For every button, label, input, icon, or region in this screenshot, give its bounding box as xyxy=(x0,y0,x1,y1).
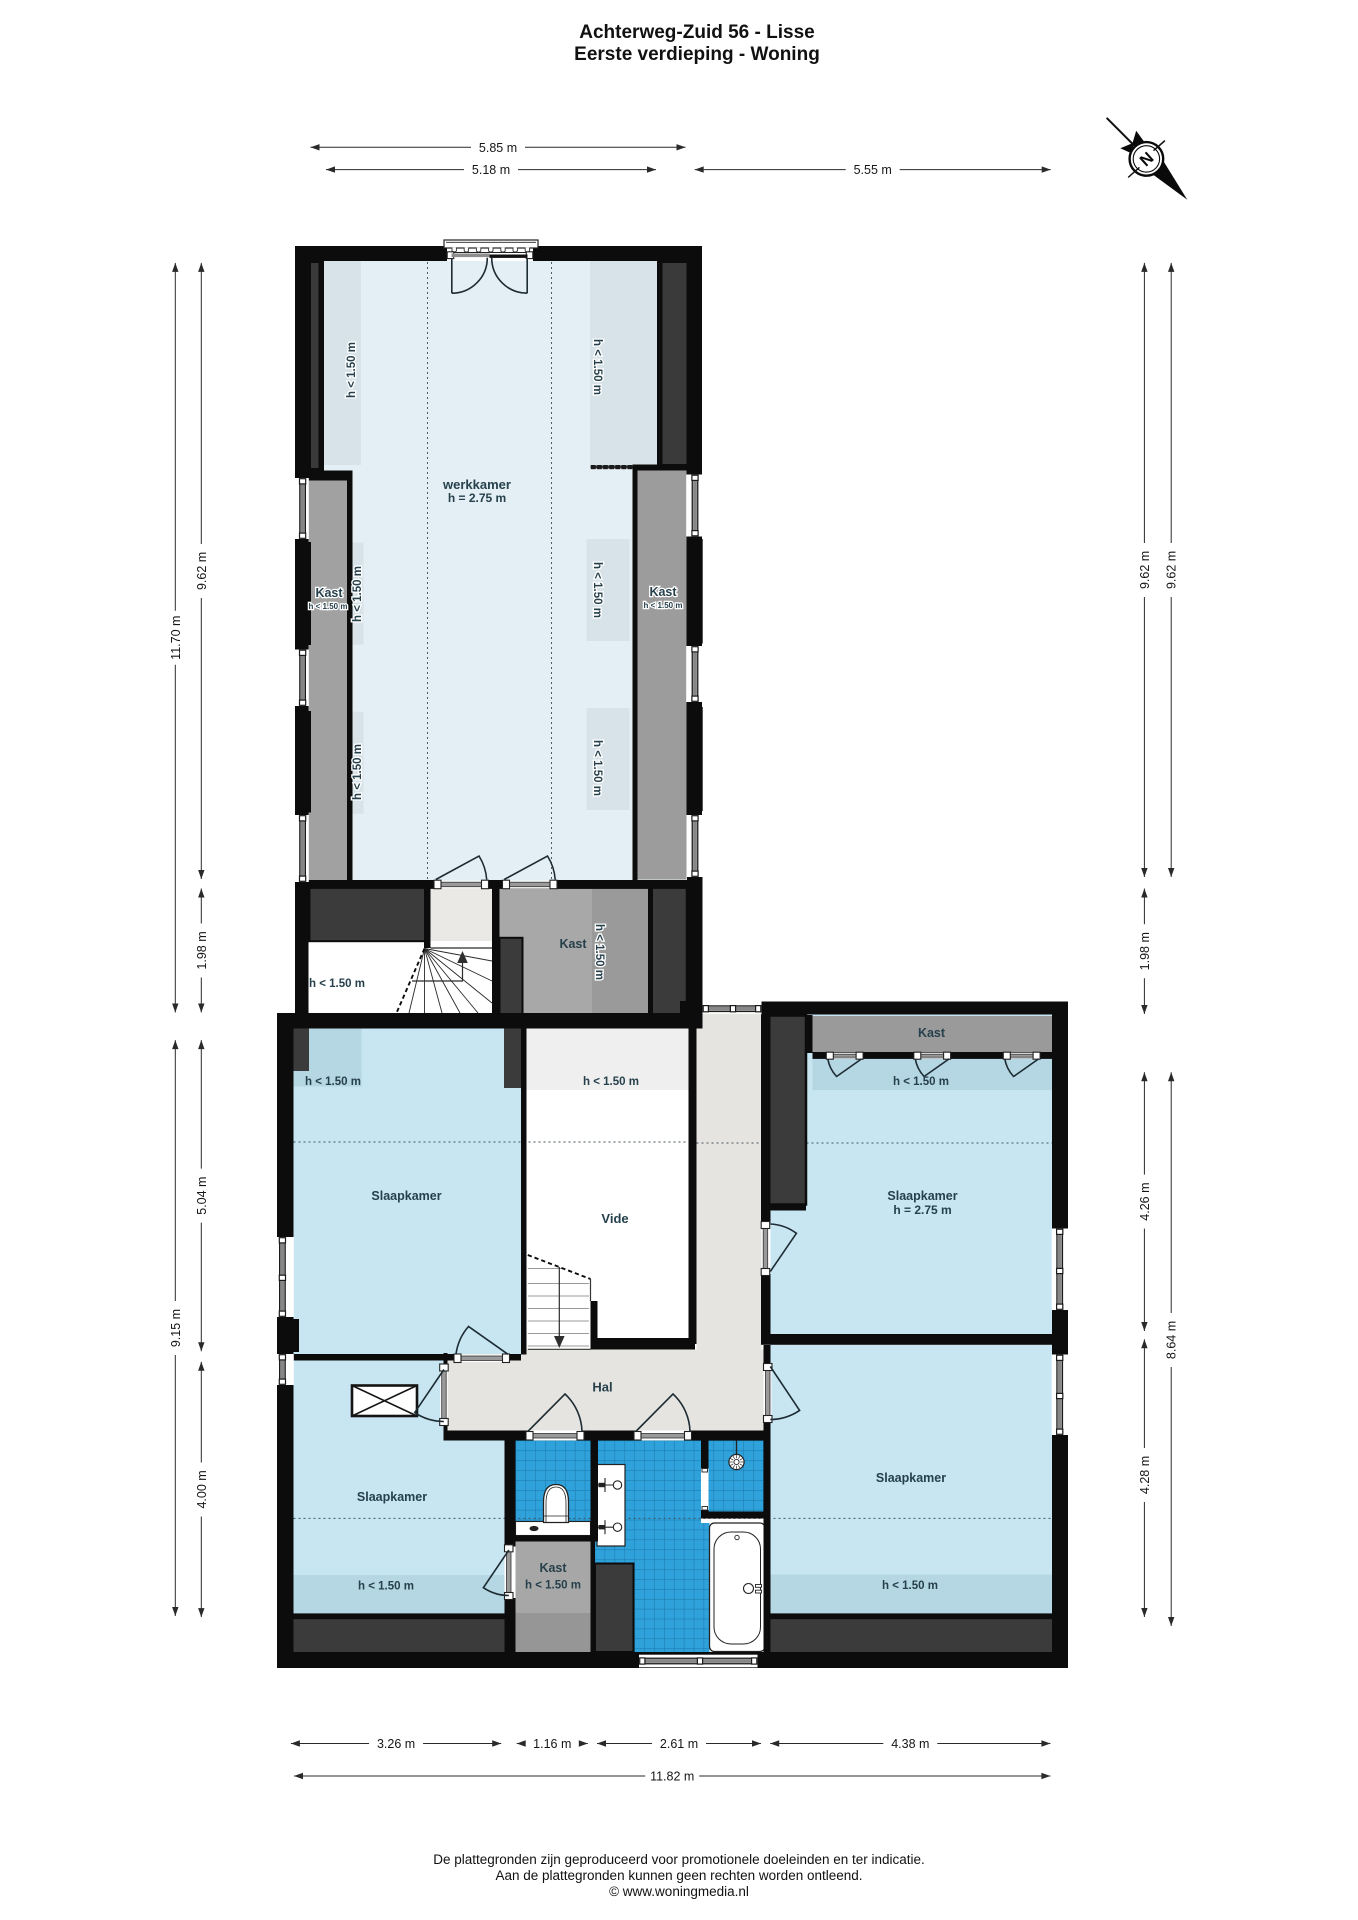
svg-text:9.62 m: 9.62 m xyxy=(1165,551,1179,589)
svg-text:1.16 m: 1.16 m xyxy=(533,1737,571,1751)
svg-text:Vide: Vide xyxy=(601,1211,628,1226)
svg-text:De plattegronden zijn geproduc: De plattegronden zijn geproduceerd voor … xyxy=(433,1852,925,1867)
svg-text:h < 1.50 m: h < 1.50 m xyxy=(346,342,358,398)
svg-text:5.04 m: 5.04 m xyxy=(195,1177,209,1215)
svg-text:9.15 m: 9.15 m xyxy=(169,1309,183,1347)
svg-text:Kast: Kast xyxy=(559,937,587,951)
svg-text:4.38 m: 4.38 m xyxy=(891,1737,929,1751)
svg-text:h < 1.50 m: h < 1.50 m xyxy=(882,1580,938,1592)
svg-text:5.18 m: 5.18 m xyxy=(472,163,510,177)
svg-text:Achterweg-Zuid 56 - Lisse: Achterweg-Zuid 56 - Lisse xyxy=(579,22,814,43)
svg-text:h < 1.50 m: h < 1.50 m xyxy=(644,601,683,610)
svg-text:Hal: Hal xyxy=(592,1380,612,1395)
svg-text:h = 2.75 m: h = 2.75 m xyxy=(448,491,506,505)
svg-text:h < 1.50 m: h < 1.50 m xyxy=(305,1076,361,1088)
svg-text:11.82 m: 11.82 m xyxy=(650,1770,694,1784)
svg-text:4.00 m: 4.00 m xyxy=(195,1470,209,1508)
svg-text:Slaapkamer: Slaapkamer xyxy=(357,1490,427,1504)
svg-text:h = 2.75 m: h = 2.75 m xyxy=(893,1203,951,1217)
svg-text:h < 1.50 m: h < 1.50 m xyxy=(593,924,605,980)
svg-text:Kast: Kast xyxy=(649,585,677,599)
svg-text:5.85 m: 5.85 m xyxy=(479,141,517,155)
svg-text:4.28 m: 4.28 m xyxy=(1138,1456,1152,1494)
svg-text:Eerste verdieping - Woning: Eerste verdieping - Woning xyxy=(574,44,820,65)
svg-text:h < 1.50 m: h < 1.50 m xyxy=(358,1581,414,1593)
svg-text:h < 1.50 m: h < 1.50 m xyxy=(309,602,348,611)
svg-text:Aan de plattegronden kunnen ge: Aan de plattegronden kunnen geen rechten… xyxy=(495,1868,862,1883)
svg-text:2.61 m: 2.61 m xyxy=(660,1737,698,1751)
svg-text:h < 1.50 m: h < 1.50 m xyxy=(591,740,603,796)
svg-text:h < 1.50 m: h < 1.50 m xyxy=(352,744,364,800)
svg-text:1.98 m: 1.98 m xyxy=(1138,932,1152,970)
svg-text:h < 1.50 m: h < 1.50 m xyxy=(352,566,364,622)
svg-text:Kast: Kast xyxy=(315,586,343,600)
svg-text:1.98 m: 1.98 m xyxy=(195,931,209,969)
svg-text:Slaapkamer: Slaapkamer xyxy=(371,1189,441,1203)
svg-text:9.62 m: 9.62 m xyxy=(1138,551,1152,589)
svg-text:5.55 m: 5.55 m xyxy=(854,163,892,177)
svg-text:h < 1.50 m: h < 1.50 m xyxy=(893,1076,949,1088)
svg-text:Kast: Kast xyxy=(918,1026,946,1040)
svg-text:h < 1.50 m: h < 1.50 m xyxy=(309,978,365,990)
svg-text:© www.woningmedia.nl: © www.woningmedia.nl xyxy=(609,1884,749,1899)
svg-text:3.26 m: 3.26 m xyxy=(377,1737,415,1751)
svg-text:werkkamer: werkkamer xyxy=(442,477,511,492)
svg-text:Slaapkamer: Slaapkamer xyxy=(876,1471,946,1485)
svg-text:4.26 m: 4.26 m xyxy=(1138,1182,1152,1220)
svg-text:h < 1.50 m: h < 1.50 m xyxy=(583,1076,639,1088)
svg-text:h < 1.50 m: h < 1.50 m xyxy=(525,1580,581,1592)
svg-text:8.64 m: 8.64 m xyxy=(1165,1321,1179,1359)
svg-text:h < 1.50 m: h < 1.50 m xyxy=(591,562,603,618)
svg-text:11.70 m: 11.70 m xyxy=(169,616,183,660)
svg-text:Kast: Kast xyxy=(539,1561,567,1575)
svg-text:9.62 m: 9.62 m xyxy=(195,552,209,590)
svg-text:Slaapkamer: Slaapkamer xyxy=(887,1189,957,1203)
svg-text:h < 1.50 m: h < 1.50 m xyxy=(591,339,603,395)
